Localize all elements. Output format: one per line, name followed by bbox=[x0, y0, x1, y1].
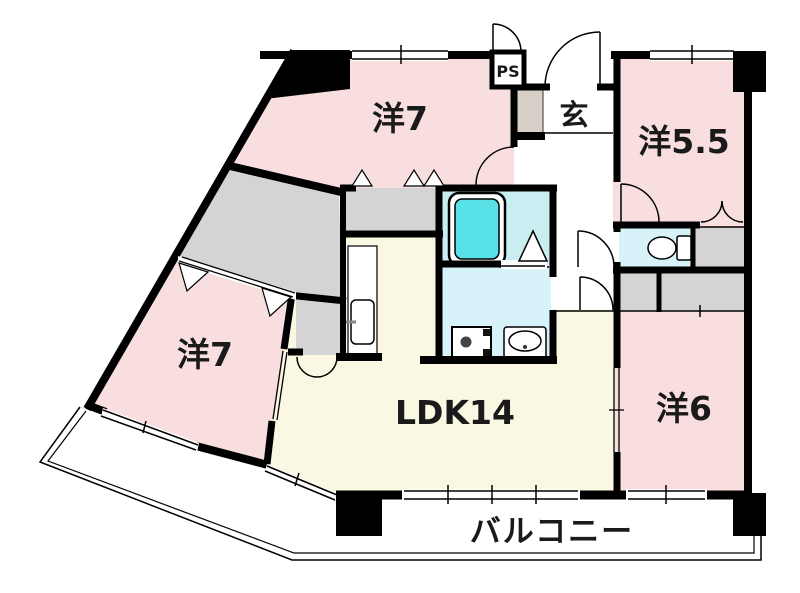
label-balcony: バルコニー bbox=[470, 514, 634, 550]
floor-plan: 洋7 洋5.5 洋7 LDK14 洋6 玄 PS バルコニー bbox=[0, 0, 800, 593]
closet-west6-left bbox=[617, 272, 657, 311]
pillar-bottom-right bbox=[733, 493, 766, 536]
closet-top-strip bbox=[343, 188, 439, 234]
corner-mass-top-right bbox=[733, 51, 766, 92]
kitchen-counter bbox=[346, 246, 377, 357]
closet-west6-right bbox=[661, 272, 746, 311]
label-west7-left: 洋7 bbox=[177, 335, 233, 374]
label-west55: 洋5.5 bbox=[638, 122, 729, 161]
washing-machine-pan bbox=[452, 327, 491, 358]
label-ldk: LDK14 bbox=[395, 393, 515, 432]
label-west6: 洋6 bbox=[656, 389, 712, 428]
wash-basin bbox=[504, 327, 546, 358]
label-pipe-space: PS bbox=[496, 62, 519, 81]
closet-beside-toilet bbox=[695, 227, 746, 270]
entrance-door bbox=[545, 32, 600, 87]
label-entrance: 玄 bbox=[559, 98, 588, 132]
floor-plan-page: 洋7 洋5.5 洋7 LDK14 洋6 玄 PS バルコニー bbox=[0, 0, 800, 593]
pillar-bottom-center bbox=[336, 493, 382, 536]
bathtub bbox=[449, 193, 505, 265]
label-west7-top: 洋7 bbox=[372, 99, 428, 138]
room-west7-top-floor bbox=[228, 53, 514, 190]
washroom-door bbox=[580, 277, 613, 310]
toilet bbox=[648, 236, 691, 260]
toilet-door bbox=[578, 231, 614, 267]
shoe-cabinet bbox=[517, 90, 543, 134]
closet-ldk bbox=[296, 299, 343, 355]
ps-hatch-door bbox=[493, 24, 521, 52]
